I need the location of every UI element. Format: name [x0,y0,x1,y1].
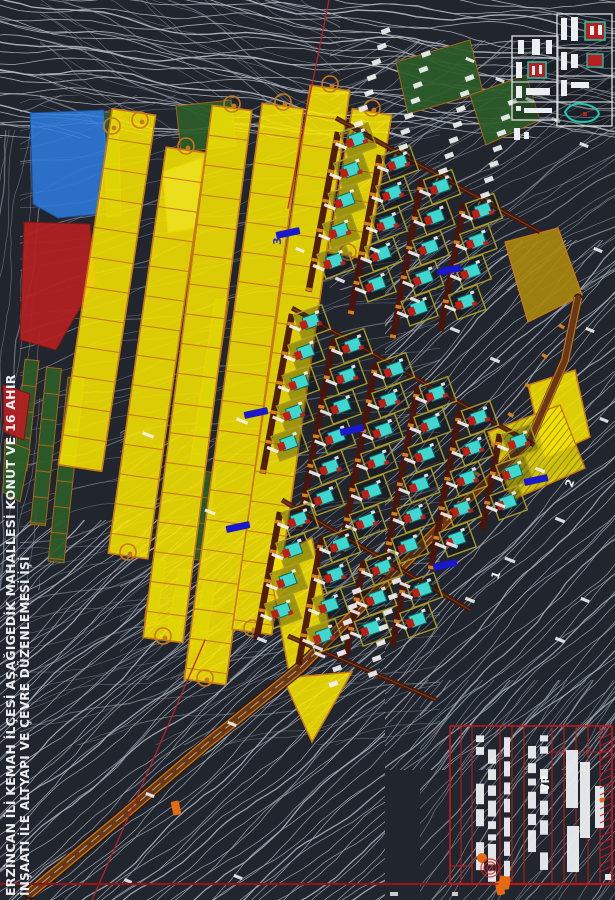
legend-text-bar [561,52,567,70]
culdesac-dot [283,102,288,107]
vp-label: VP [539,775,552,792]
table-text-bar [488,834,496,840]
house-lot [456,431,493,466]
text-scribble [233,874,243,880]
legend-text-bar [524,132,529,139]
text-scribble [580,597,590,603]
legend-box-2 [557,14,612,126]
scribble-bar [450,327,460,334]
scribble-bar [465,597,475,604]
legend-text-bar [532,39,540,55]
scribble-bar [233,874,243,880]
scribble-bar [555,517,565,524]
table-text-bar [504,782,510,794]
table-text-bar [488,785,496,795]
bottom-mark [390,892,398,896]
table-hatch-line [600,733,612,739]
scribble-bar [599,417,609,423]
house-lot [359,267,396,302]
block-number-label: 3 [271,237,284,245]
orange-marker [171,800,182,815]
legend-text-bar [514,128,520,140]
table-hatch-line [600,761,612,767]
project-title-line1: ERZİNCAN İLİ KEMAH İLÇESİ AŞAĞIGEDİK MAH… [4,376,18,896]
house-lot [454,254,491,289]
table-hatch-line [600,845,612,851]
table-text-bar [504,737,510,757]
scribble-bar [580,597,590,603]
text-scribble [555,517,565,524]
survey-dash [449,136,459,144]
table-text-bar [540,746,548,753]
culdesac-dot [128,552,133,557]
contour-line [0,0,615,5]
contour-line [47,626,518,900]
legend-symbol-mark [583,112,587,116]
house-lot [400,603,437,638]
table-text-block [567,826,579,872]
table-text-bar [504,761,510,776]
house-lot [381,146,418,181]
house-lot [460,224,497,259]
house-lot [423,170,460,205]
table-text-bar [488,801,496,817]
table-text-bar [476,809,484,826]
house-lot [361,444,398,479]
road-tick [507,412,514,418]
yellow-parcel [283,672,352,742]
orange-marker [498,875,511,890]
table-text-bar [540,801,548,815]
table-text-bar [488,821,496,829]
culdesac-dot [163,636,168,641]
legend-text-bar [571,17,578,41]
legend-symbol-mark [539,65,542,74]
legend-text-bar [561,80,567,96]
survey-dash [452,121,462,129]
survey-dash [367,74,377,82]
legend-text-bar [571,82,589,88]
culdesac-dot [330,84,335,89]
table-text-block [605,874,611,880]
table-text-block [580,762,590,838]
legend-text-bar [546,40,552,54]
legend-symbol-mark [532,66,535,75]
table-text-bar [476,747,484,755]
survey-dash [332,665,342,673]
red-scribble-circle [487,865,493,871]
table-text-block [566,750,578,808]
table-text-bar [476,735,484,742]
house-lot [449,285,486,320]
table-text-bar [528,792,536,809]
table-text-bar [528,746,536,758]
culdesac-dot [140,120,145,125]
table-text-bar [540,852,548,870]
table-text-bar [488,749,496,763]
table-text-bar [504,799,510,813]
goldenrod-parcel [505,228,582,322]
table-text-bar [488,769,496,780]
road-tick [541,353,548,359]
block-number-label: 2 [563,477,578,489]
blue-parcel [30,110,107,218]
culdesac-dot [372,108,377,113]
table-text-bar [540,820,548,834]
text-scribble [599,417,609,423]
legend-text-bar [516,62,522,78]
text-scribble [450,327,460,334]
project-title: ERZİNCAN İLİ KEMAH İLÇESİ AŞAĞIGEDİK MAH… [4,376,32,896]
legend-house-symbol [587,54,603,67]
table-hatch-line [600,866,612,872]
table-hatch-line [600,775,612,781]
culdesac-dot [205,678,210,683]
legend-symbol-mark [598,25,602,35]
legend-text-bar [571,54,578,68]
legend-text-bar [561,18,567,40]
text-scribble [465,597,475,604]
table-text-bar [528,763,536,773]
survey-dash [492,145,502,153]
contour-line [462,485,615,900]
scribble-bar [585,327,595,333]
legend-house-symbol [528,62,546,78]
house-lot [349,505,386,540]
legend-text-bar [516,106,521,111]
orange-dot [600,798,605,803]
survey-dash [489,160,499,168]
culdesac-dot [232,104,237,109]
survey-dash [400,128,410,136]
site-plan-canvas: 321 VP ERZİNCAN İLİ KEMAH İLÇESİ AŞAĞIGE… [0,0,615,900]
table-text-bar [504,842,510,856]
table-text-bar [488,844,496,865]
table-text-bar [476,784,484,805]
legend-text-bar [518,40,524,54]
legend-symbol-mark [590,26,594,35]
culdesac-dot [112,126,117,131]
contour-line [69,0,418,48]
legend-text-bar [516,86,522,98]
table-text-bar [528,779,536,786]
orange-marker [477,853,487,863]
legend-text-bar [526,88,550,95]
house-lot [465,194,502,229]
table-text-bar [504,818,510,837]
table-text-bar [540,735,548,741]
legend-text-bar [524,108,552,113]
culdesac-dot [186,146,191,151]
table-text-bar [528,830,536,852]
house-lot [313,450,350,485]
survey-dash [364,89,374,97]
project-title-line2: İNŞAATI İLE ALTYAPI VE ÇEVRE DÜZENLEMESİ… [18,376,32,896]
table-text-bar [528,814,536,825]
plan-svg: 321 VP [0,0,615,900]
bottom-mark [452,892,458,896]
table-text-bar [504,861,510,877]
house-lot [319,420,356,455]
text-scribble [585,327,595,333]
